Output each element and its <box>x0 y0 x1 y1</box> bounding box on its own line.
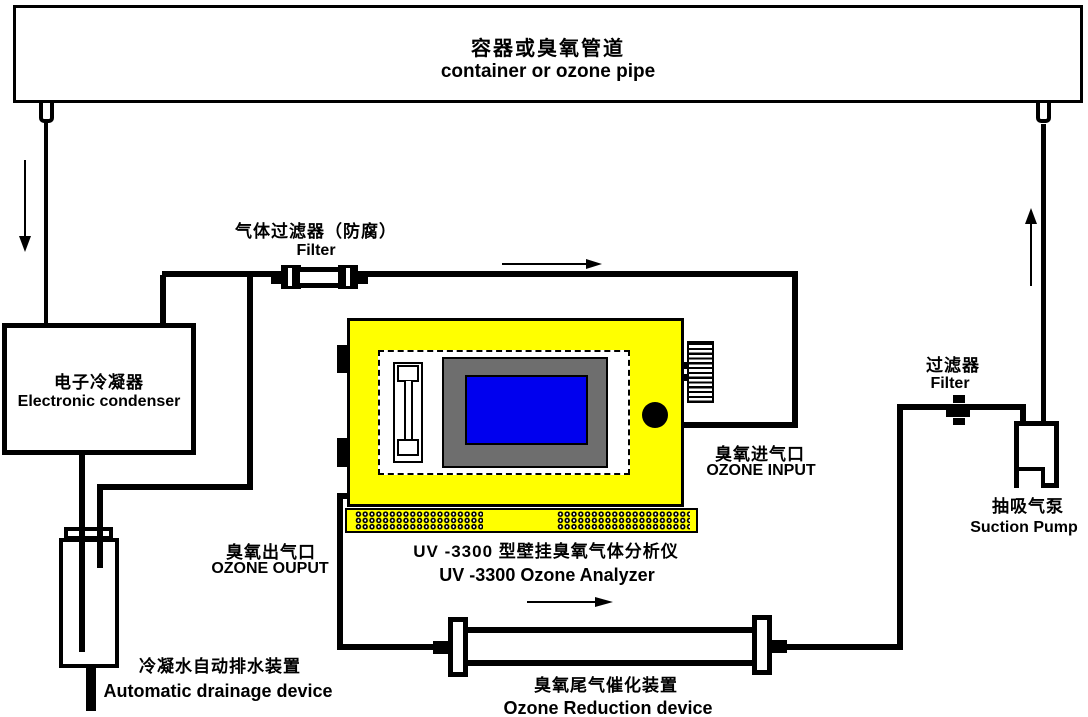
flow-arrow-down-icon <box>19 236 31 252</box>
pipe-condenser-drain <box>79 455 85 652</box>
reduction-cap-right <box>752 615 772 675</box>
container-pipe-box: 容器或臭氧管道 container or ozone pipe <box>13 5 1083 103</box>
flow-arrow-right-top-icon <box>586 259 602 269</box>
lcd-screen <box>465 375 588 445</box>
reduction-tube <box>460 627 760 666</box>
reduction-nipple-right <box>771 640 787 653</box>
reduction-label-zh: 臭氧尾气催化装置 <box>534 676 678 696</box>
reduction-cap-left <box>448 617 468 677</box>
flow-cell-top-fitting <box>397 365 419 382</box>
ozone-analyzer-diagram: 容器或臭氧管道 container or ozone pipe 电子冷凝器 El… <box>0 0 1088 717</box>
analyzer-label-zh: UV -3300 型壁挂臭氧气体分析仪 <box>413 542 679 562</box>
pipe-to-reduction-left <box>340 644 436 650</box>
pipe-ozone-input-h <box>684 422 798 428</box>
pipe-ozone-output-down <box>337 493 343 650</box>
container-pipe-label-zh: 容器或臭氧管道 <box>16 32 1080 61</box>
gas-filter-cap-right-slit <box>346 268 350 286</box>
pipe-ozone-input-down <box>792 271 798 428</box>
pipe-container-to-condenser <box>44 120 48 325</box>
suction-pump-label-zh: 抽吸气泵 <box>992 497 1064 517</box>
right-filter-label-en: Filter <box>930 375 969 393</box>
knurled-inlet-connector <box>687 341 714 403</box>
analyzer-label-en: UV -3300 Ozone Analyzer <box>439 565 654 586</box>
drainage-label-zh: 冷凝水自动排水装置 <box>139 657 301 677</box>
gas-filter-label-en: Filter <box>296 242 335 260</box>
gas-filter-cap-left <box>281 265 301 289</box>
pipe-drain-branch-h <box>97 484 253 490</box>
pipe-drain-into-vessel <box>97 487 103 568</box>
flow-arrow-down-tail <box>24 160 26 238</box>
right-filter-label-zh: 过滤器 <box>926 356 980 376</box>
pipe-sample-main <box>162 271 798 277</box>
pipe-tap-right <box>1036 103 1051 123</box>
analyzer-left-port-top <box>337 345 347 373</box>
drainage-outlet-stub <box>86 666 96 711</box>
right-filter-bottom <box>953 418 965 425</box>
flow-arrow-right-bottom-icon <box>595 597 613 607</box>
pipe-pump-to-container <box>1041 124 1046 422</box>
flow-cell-bottom-fitting <box>397 439 419 456</box>
gas-filter-tube <box>300 267 339 288</box>
pipe-drain-branch-v <box>247 275 253 488</box>
gas-filter-nub-right <box>357 272 368 284</box>
electronic-condenser-box: 电子冷凝器 Electronic condenser <box>2 323 196 455</box>
analyzer-left-port-bottom <box>337 438 347 467</box>
gas-filter-label-zh: 气体过滤器（防腐） <box>235 222 397 242</box>
knurl-mount-tab-bottom <box>683 374 687 381</box>
ozone-output-label-en: OZONE OUPUT <box>211 560 328 578</box>
flow-arrow-up-icon <box>1025 208 1037 224</box>
reduction-nipple-left <box>433 641 449 654</box>
right-filter-top <box>953 395 965 403</box>
flow-arrow-up-tail <box>1030 222 1032 286</box>
flow-arrow-right-bottom-tail <box>527 601 597 603</box>
pipe-from-reduction-right <box>785 644 901 650</box>
vent-grille-holes-left <box>355 511 483 530</box>
suction-pump-notch <box>1019 467 1045 488</box>
power-button <box>642 402 668 428</box>
drainage-vessel-body <box>59 538 119 668</box>
gas-filter-cap-right <box>338 265 358 289</box>
gas-filter-cap-left-slit <box>288 268 292 286</box>
vent-grille-holes-right <box>557 511 690 530</box>
container-pipe-label-en: container or ozone pipe <box>16 61 1080 83</box>
condenser-label-zh: 电子冷凝器 <box>7 368 191 393</box>
drainage-label-en: Automatic drainage device <box>103 681 332 702</box>
pipe-condenser-riser <box>160 275 166 325</box>
right-filter-mid <box>946 404 970 417</box>
condenser-label-en: Electronic condenser <box>7 393 191 411</box>
flow-cell-tube <box>404 381 413 440</box>
suction-pump-label-en: Suction Pump <box>970 519 1078 537</box>
pipe-reduction-to-filter <box>897 404 903 650</box>
flow-arrow-right-top-tail <box>502 263 590 265</box>
reduction-label-en: Ozone Reduction device <box>503 698 712 717</box>
ozone-input-label-en: OZONE INPUT <box>706 462 815 480</box>
knurl-mount-tab-top <box>683 362 687 369</box>
